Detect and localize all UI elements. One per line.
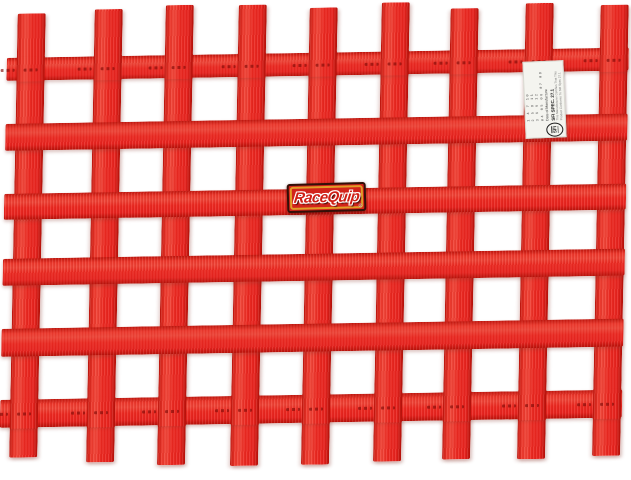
stitch-marks	[245, 64, 259, 67]
stitch-marks	[71, 411, 85, 414]
stitch-marks	[577, 403, 591, 406]
registered-trademark-symbol: ®	[358, 203, 362, 209]
stitch-marks	[293, 63, 307, 66]
stitch-marks	[502, 404, 516, 407]
sfi-certification-tag: SFI 1 4 7 10 2 5 8 11 3 6 9 12 04 05 06 …	[522, 60, 566, 139]
stitch-marks	[149, 66, 163, 69]
stitch-marks	[427, 406, 441, 409]
stitch-marks	[78, 67, 92, 70]
stitch-marks	[24, 68, 38, 71]
stitch-marks	[434, 61, 448, 64]
stitch-marks	[607, 58, 621, 61]
stitch-marks	[0, 413, 8, 416]
stitch-marks	[1, 68, 15, 71]
stitch-marks	[388, 62, 402, 65]
stitch-marks	[142, 410, 156, 413]
stitch-marks	[584, 59, 598, 62]
stitch-marks	[600, 403, 614, 406]
sfi-oval-icon: SFI	[546, 122, 564, 137]
product-photo: SFI 1 4 7 10 2 5 8 11 3 6 9 12 04 05 06 …	[0, 0, 631, 480]
stitch-marks	[17, 412, 31, 415]
brand-label-text: RaceQuip	[293, 188, 360, 207]
racequip-brand-label: RaceQuip ®	[287, 182, 367, 213]
stitch-marks	[165, 410, 179, 413]
stitch-marks	[222, 65, 236, 68]
sfi-tag-rotated-content: SFI 1 4 7 10 2 5 8 11 3 6 9 12 04 05 06 …	[523, 60, 565, 139]
stitch-marks	[358, 407, 372, 410]
stitch-marks	[450, 405, 464, 408]
stitch-marks	[286, 408, 300, 411]
stitch-marks	[309, 408, 323, 411]
stitch-marks	[238, 409, 252, 412]
stitch-marks	[215, 409, 229, 412]
stitch-marks	[457, 61, 471, 64]
stitch-marks	[101, 67, 115, 70]
sfi-tag-text: 1 4 7 10 2 5 8 11 3 6 9 12 04 05 06 07 0…	[523, 60, 565, 124]
stitch-marks	[365, 62, 379, 65]
stitch-marks	[172, 65, 186, 68]
stitch-marks	[316, 63, 330, 66]
stitch-marks	[94, 411, 108, 414]
sfi-logo: SFI	[526, 122, 566, 139]
stitch-marks	[509, 60, 523, 63]
stitch-marks	[381, 406, 395, 409]
stitch-marks	[525, 404, 539, 407]
